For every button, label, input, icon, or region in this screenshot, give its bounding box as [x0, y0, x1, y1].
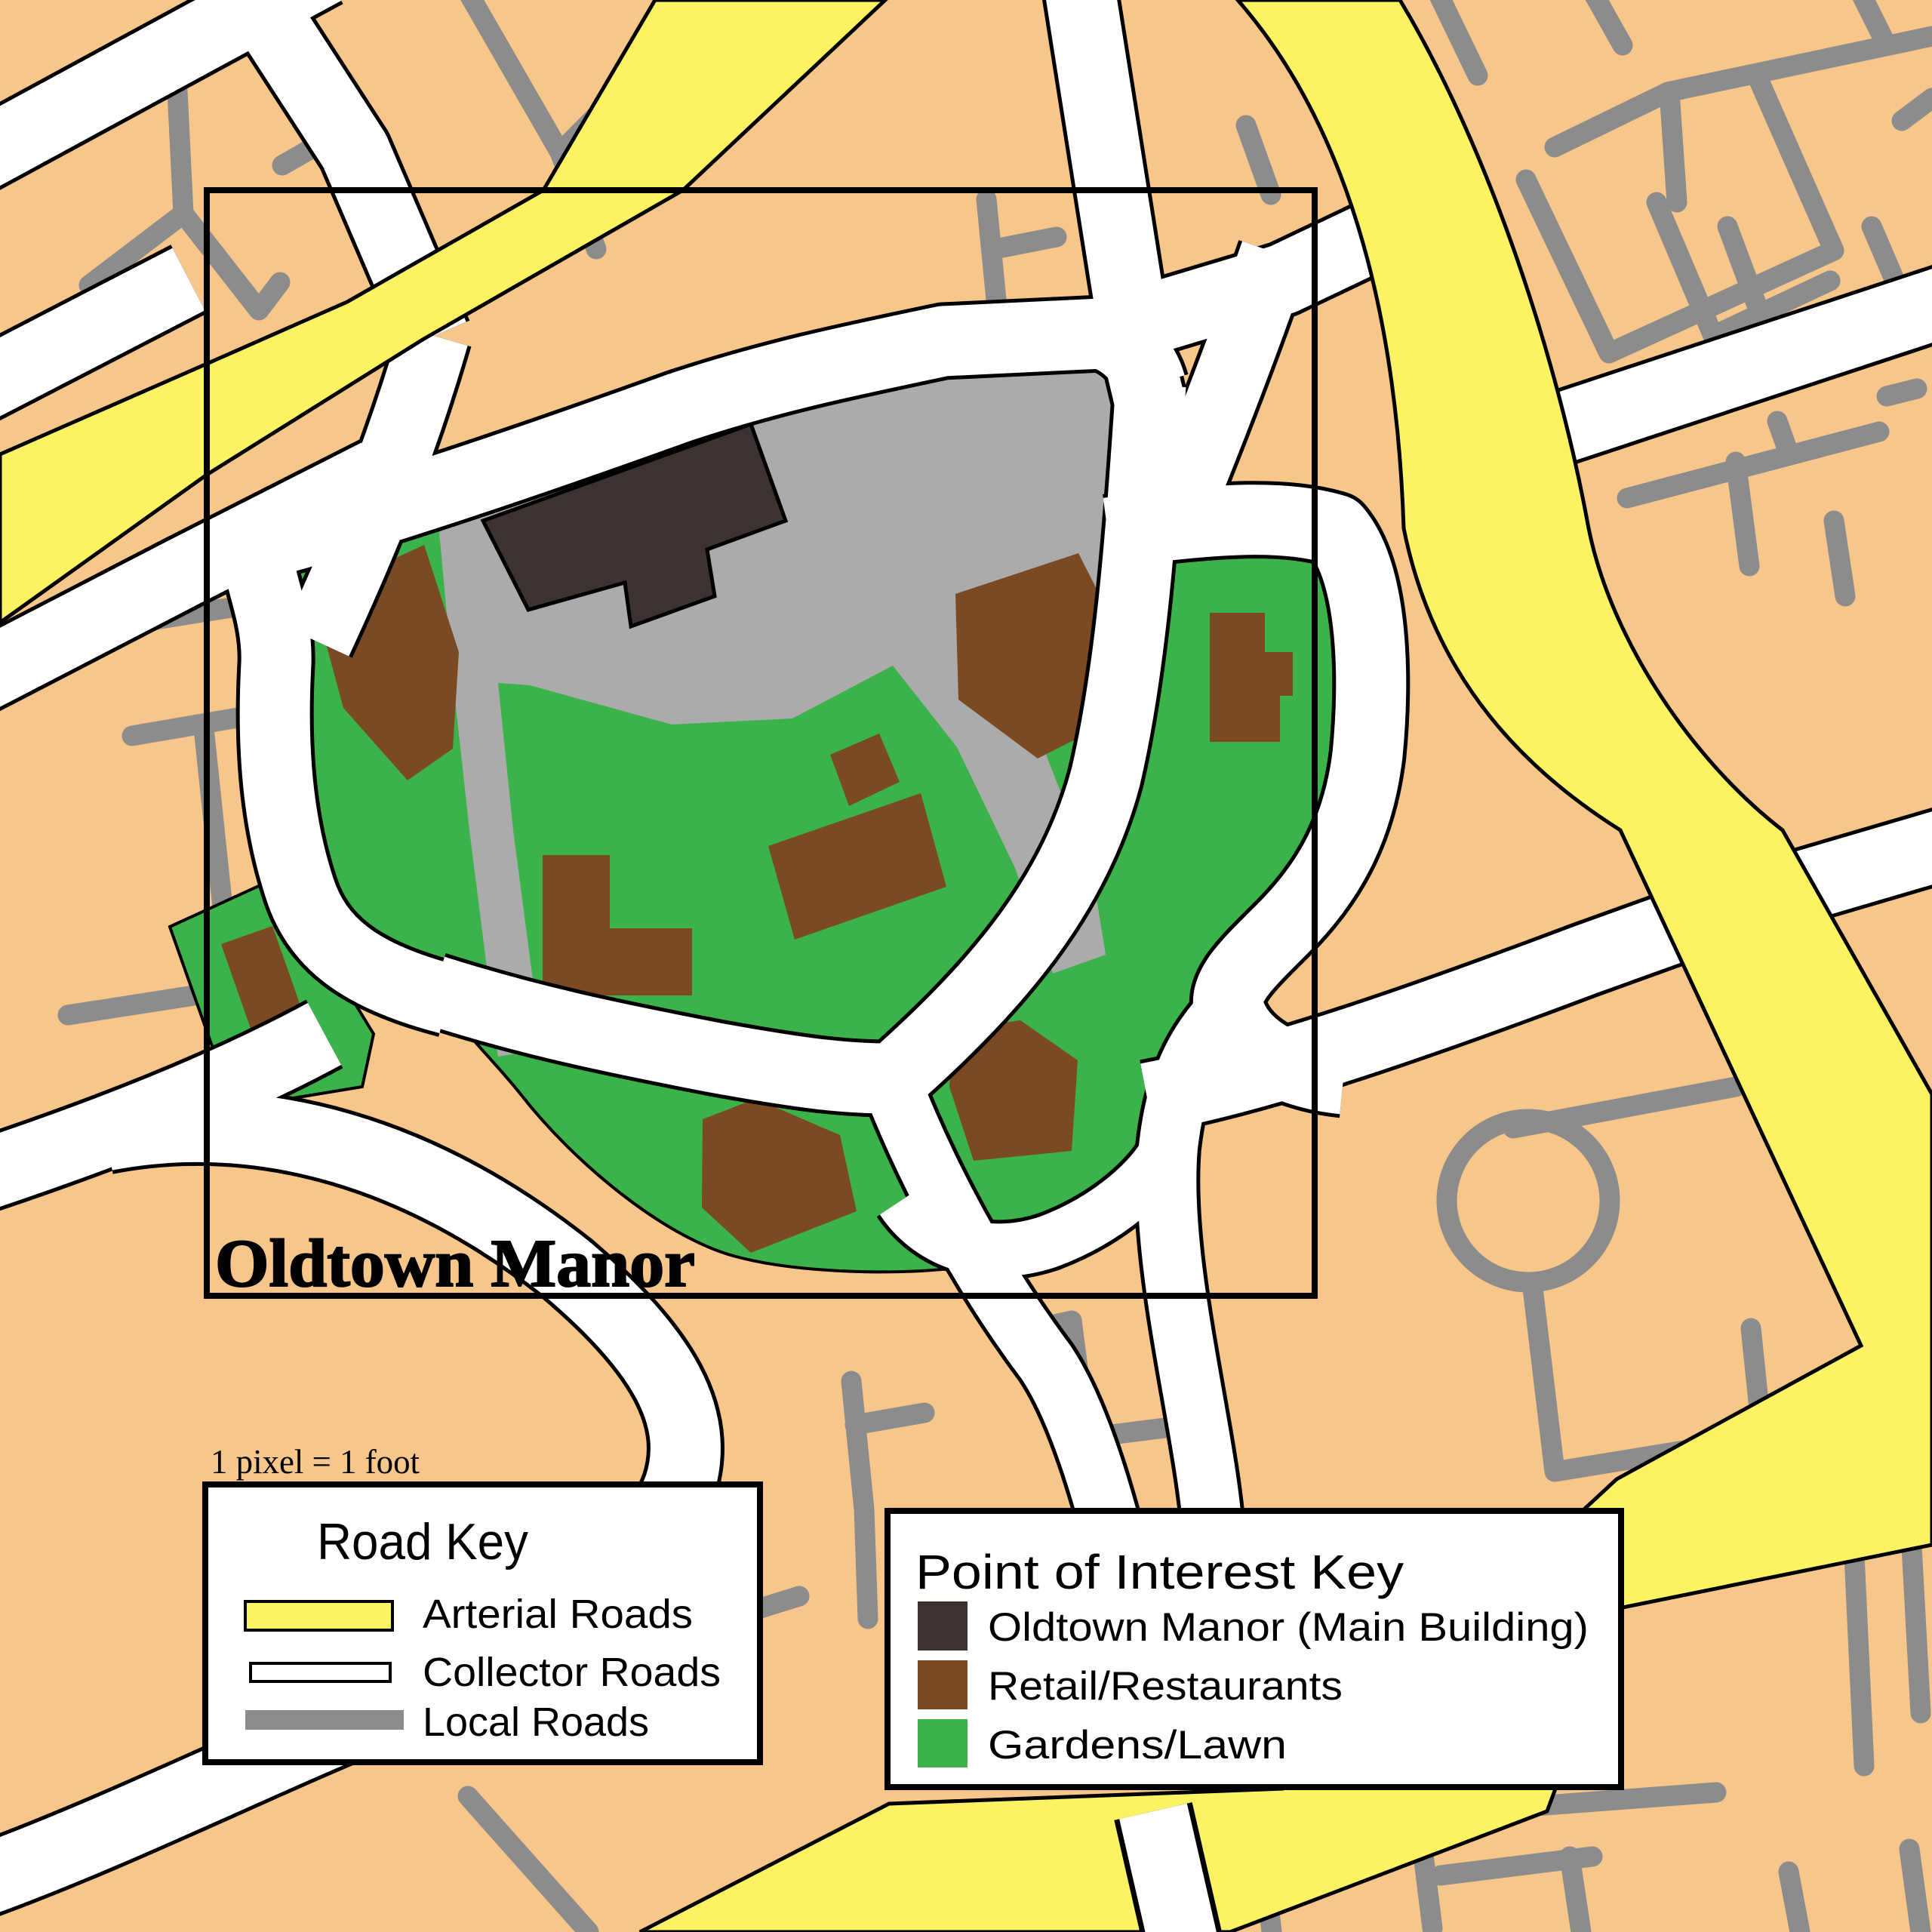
svg-text:Point of Interest Key: Point of Interest Key: [915, 1545, 1404, 1599]
svg-text:Retail/Restaurants: Retail/Restaurants: [988, 1664, 1343, 1709]
svg-text:1 pixel = 1 foot: 1 pixel = 1 foot: [211, 1442, 420, 1481]
svg-text:Road Key: Road Key: [317, 1513, 528, 1571]
svg-text:Oldtown Manor (Main Building): Oldtown Manor (Main Building): [988, 1605, 1589, 1650]
svg-text:Local Roads: Local Roads: [423, 1700, 649, 1745]
svg-text:Oldtown Manor: Oldtown Manor: [215, 1226, 695, 1301]
svg-text:Gardens/Lawn: Gardens/Lawn: [988, 1723, 1287, 1767]
svg-text:Collector Roads: Collector Roads: [423, 1650, 721, 1695]
svg-text:Arterial Roads: Arterial Roads: [423, 1592, 693, 1637]
